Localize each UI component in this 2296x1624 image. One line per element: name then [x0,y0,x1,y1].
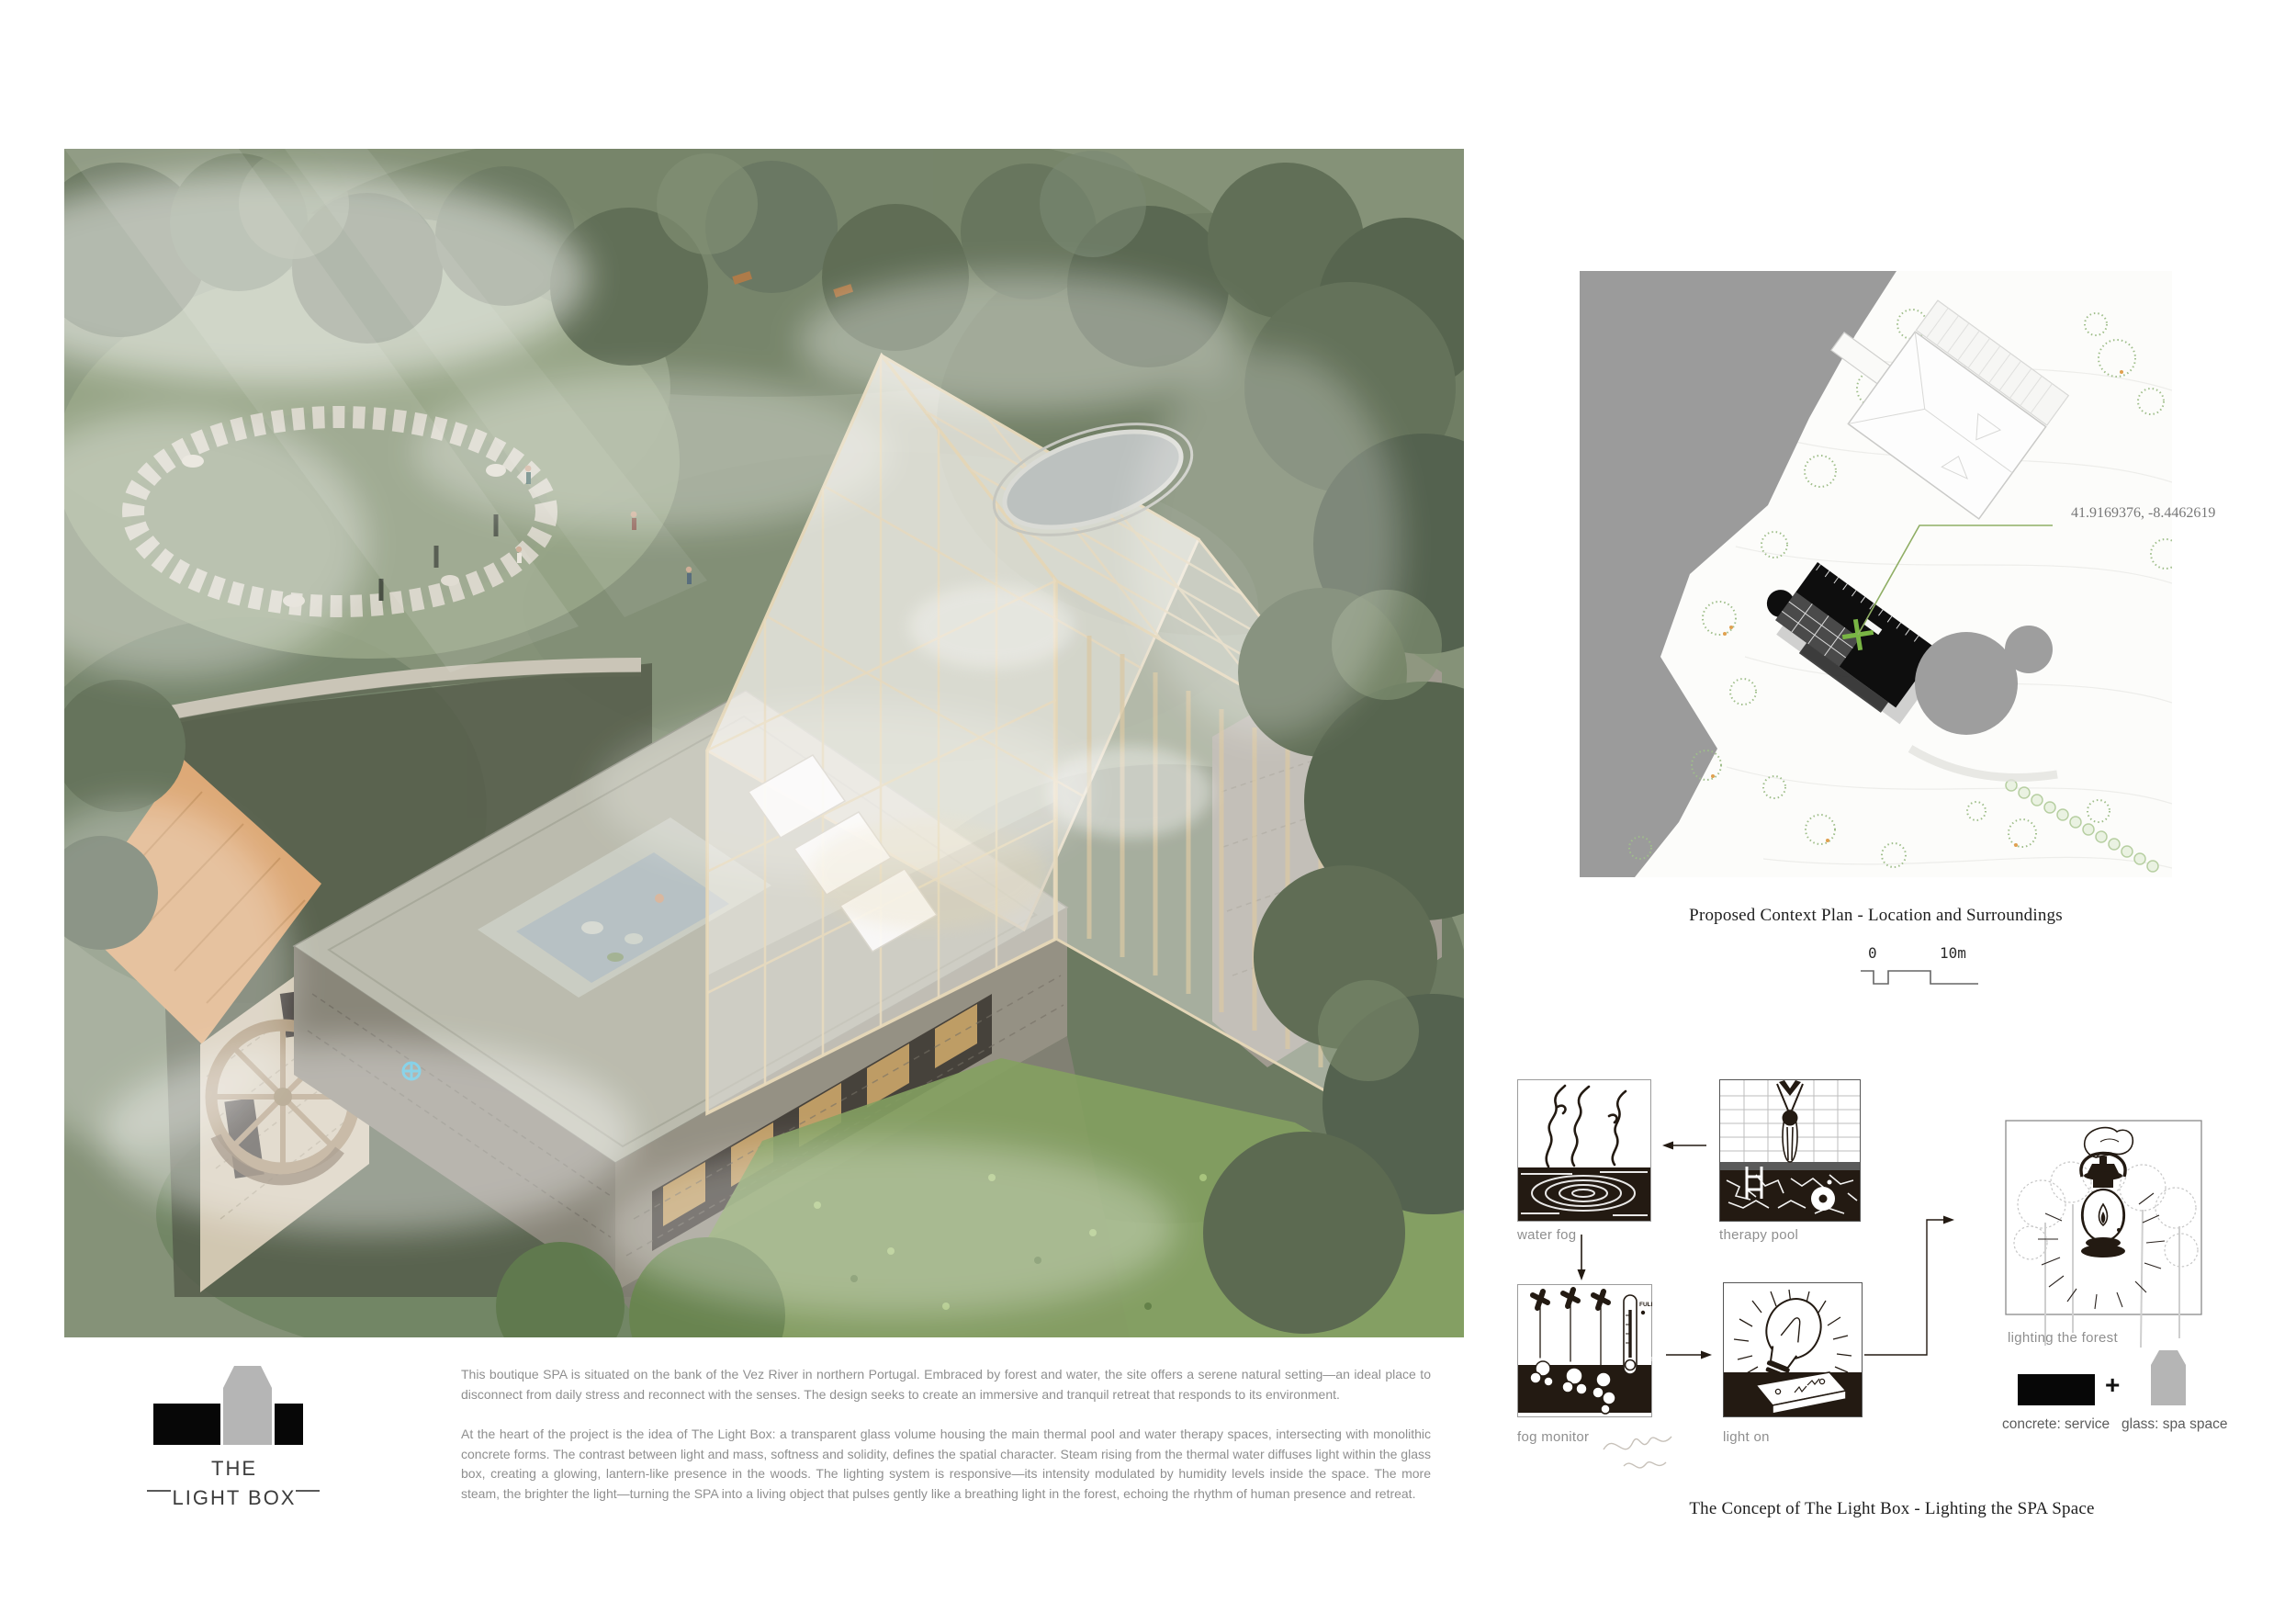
water-fog-sketch [1517,1079,1651,1222]
signature-scribble [1596,1422,1679,1486]
plan-circle-large [1915,632,2018,735]
elbow-connector-arrow [1863,1211,1964,1362]
presentation-board: 41.9169376, -8.4462619 Proposed Context … [0,0,2296,1624]
scale-start-label: 0 [1868,944,1877,962]
logo-dash-left [147,1490,171,1492]
scale-bar: 0 10m [1855,944,1993,996]
light-on-sketch [1723,1282,1863,1417]
therapy-pool-label: therapy pool [1719,1227,1798,1243]
logo-title-line1: THE [129,1457,340,1481]
logo-lantern-icon [223,1366,272,1445]
concept-box-water-fog [1517,1079,1651,1222]
thermometer-full-label: FULL [1639,1302,1652,1308]
fog-monitor-label: fog monitor [1517,1429,1589,1445]
legend-glass-swatch [2151,1350,2186,1405]
fog-monitor-sketch: FULL EMPTY [1517,1284,1652,1417]
concept-box-light-on [1723,1282,1863,1417]
lighting-forest-sketch [2005,1120,2202,1349]
main-render [64,149,1464,1337]
context-plan-caption: Proposed Context Plan - Location and Sur… [1580,906,2172,926]
arrow-left [1660,1139,1712,1152]
concept-box-fog-monitor: FULL EMPTY [1517,1284,1652,1417]
description-paragraph-2: At the heart of the project is the idea … [461,1425,1431,1504]
arrow-down [1575,1233,1588,1282]
project-description: This boutique SPA is situated on the ban… [461,1365,1431,1525]
lighting-forest-label: lighting the forest [2008,1330,2118,1346]
logo-left-bar [153,1404,220,1445]
concept-caption: The Concept of The Light Box - Lighting … [1616,1499,2167,1519]
scale-end-label: 10m [1940,944,1966,962]
concept-box-therapy-pool [1719,1079,1861,1222]
description-paragraph-1: This boutique SPA is situated on the ban… [461,1365,1431,1404]
legend-concrete-swatch [2018,1374,2095,1405]
render-illustration [64,149,1464,1337]
water-fog-label: water fog [1517,1227,1576,1243]
site-coordinates-label: 41.9169376, -8.4462619 [2071,505,2215,522]
context-plan-map [1580,271,2172,877]
legend-glass-label: glass: spa space [2122,1416,2227,1433]
logo-right-bar [275,1404,303,1445]
therapy-pool-sketch [1719,1079,1861,1222]
legend-concrete-label: concrete: service [2002,1416,2110,1433]
thermometer-empty-label: EMPTY [1638,1357,1652,1363]
project-logo: THE LIGHT BOX [129,1359,340,1552]
legend-plus-sign: + [2105,1370,2120,1400]
plan-circle-small [2005,626,2053,673]
scale-bar-glyph [1855,968,1984,988]
concept-box-lighting-forest [2005,1120,2202,1349]
light-on-label: light on [1723,1429,1770,1445]
logo-dash-right [296,1490,320,1492]
context-plan: 41.9169376, -8.4462619 [1580,271,2172,877]
arrow-right [1662,1348,1714,1361]
